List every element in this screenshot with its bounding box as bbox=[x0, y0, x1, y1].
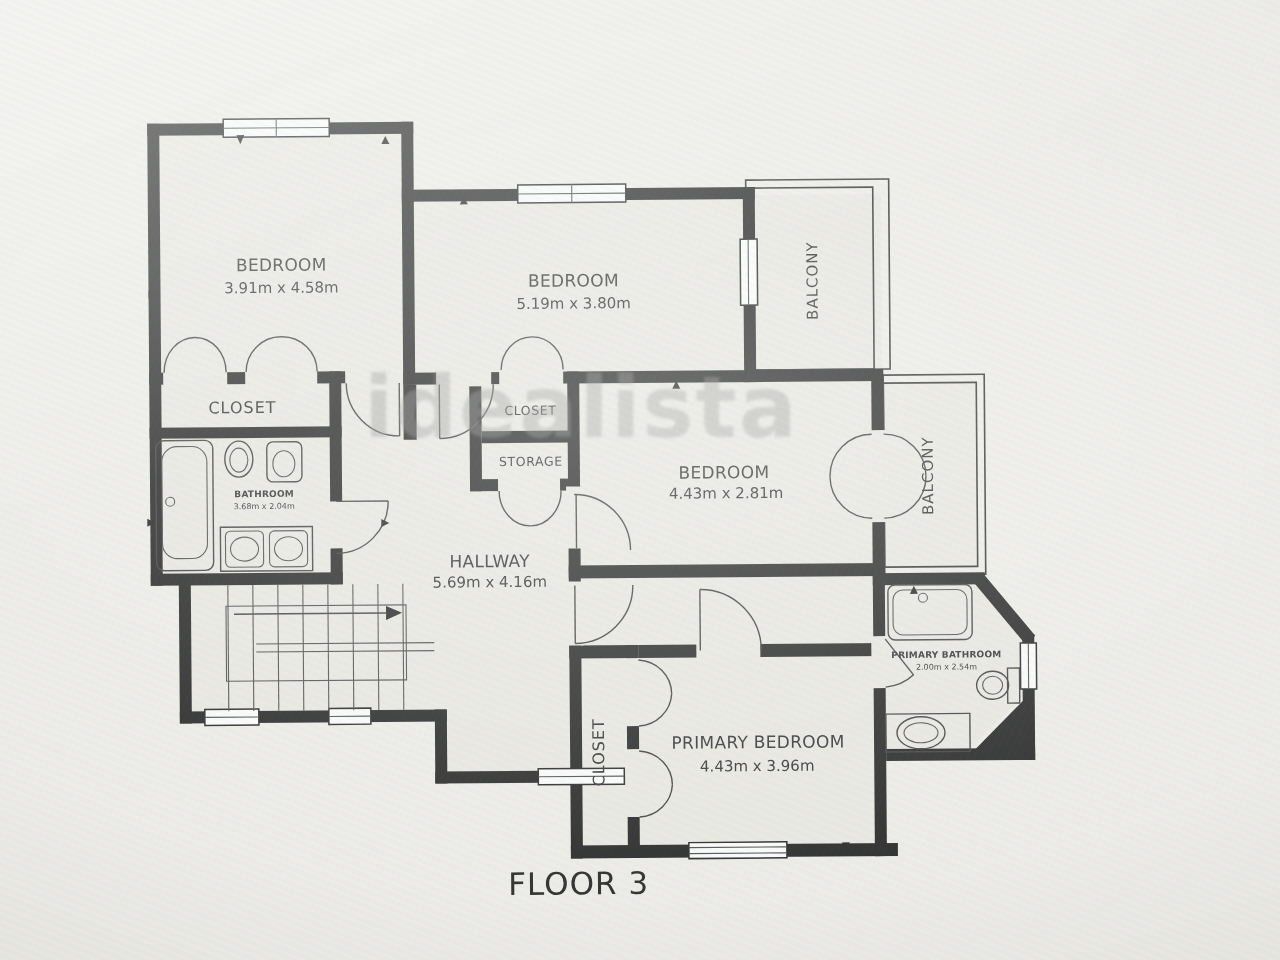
window-symbol bbox=[329, 708, 371, 724]
room-label-primary-bedroom: PRIMARY BEDROOM bbox=[671, 731, 844, 752]
room-label-bedroom-3: BEDROOM bbox=[678, 462, 769, 483]
window-symbol bbox=[223, 118, 329, 137]
room-label-bedroom-1: BEDROOM bbox=[236, 254, 327, 275]
photographed-screen-floor-plan: BEDROOM 3.91m x 4.58m BEDROOM 5.19m x 3.… bbox=[0, 0, 1280, 960]
room-label-balcony-right: BALCONY bbox=[919, 436, 938, 515]
room-dims-bedroom-1: 3.91m x 4.58m bbox=[224, 278, 339, 297]
room-label-bathroom: BATHROOM bbox=[234, 489, 294, 499]
room-dims-primary-bathroom: 2.00m x 2.54m bbox=[916, 662, 977, 671]
window-symbol bbox=[1020, 643, 1036, 689]
room-label-hallway: HALLWAY bbox=[449, 551, 530, 572]
room-dims-primary-bedroom: 4.43m x 3.96m bbox=[700, 757, 815, 776]
window-symbol bbox=[205, 709, 259, 725]
window-symbol bbox=[538, 768, 624, 785]
room-dims-bedroom-2: 5.19m x 3.80m bbox=[516, 294, 631, 313]
room-dims-bathroom: 3.68m x 2.04m bbox=[234, 502, 295, 511]
room-label-closet-primary: CLOSET bbox=[589, 718, 609, 786]
room-label-closet-left: CLOSET bbox=[208, 398, 276, 418]
room-floors bbox=[147, 117, 1024, 849]
floor-plan-drawing: BEDROOM 3.91m x 4.58m BEDROOM 5.19m x 3.… bbox=[0, 0, 1280, 960]
room-dims-hallway: 5.69m x 4.16m bbox=[433, 573, 548, 592]
balcony-door-window-symbol bbox=[740, 239, 758, 305]
room-label-primary-bathroom: PRIMARY BATHROOM bbox=[891, 649, 1001, 660]
window-symbol bbox=[518, 184, 626, 203]
room-label-balcony-top: BALCONY bbox=[803, 241, 822, 320]
floor-title: FLOOR 3 bbox=[508, 865, 649, 902]
idealista-watermark: idealista bbox=[364, 364, 799, 450]
room-dims-bedroom-3: 4.43m x 2.81m bbox=[669, 484, 784, 503]
window-symbol bbox=[689, 842, 787, 859]
room-label-bedroom-2: BEDROOM bbox=[528, 270, 619, 291]
